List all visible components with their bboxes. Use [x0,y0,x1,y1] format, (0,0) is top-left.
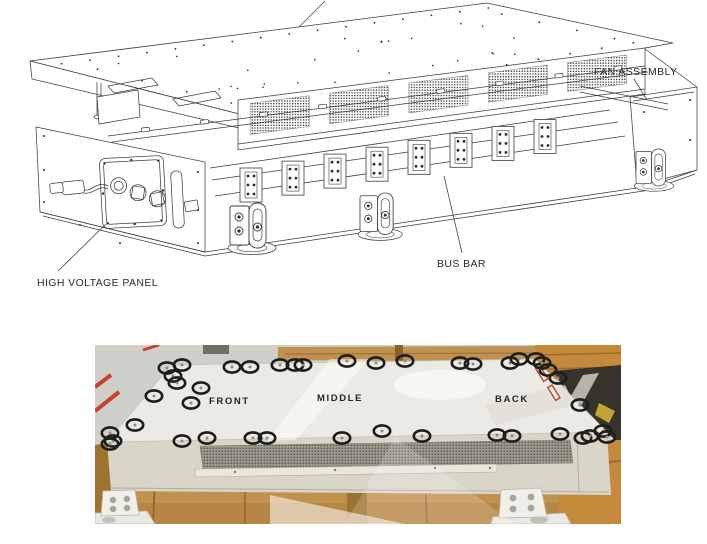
back-label: BACK [495,394,529,405]
high-voltage-panel-label: HIGH VOLTAGE PANEL [37,277,158,289]
figure-page: { "figure": { "top_diagram": { "kind": "… [0,0,707,544]
assembly-line-drawing: FAN ASSEMBLY BUS BAR HIGH VOLTAGE PANEL [0,0,707,335]
background-object [203,345,229,354]
middle-label: MIDDLE [317,393,363,404]
leader-line-top-cover [299,1,325,27]
fan-assembly-label: FAN ASSEMBLY [594,66,677,78]
mounting-foot [228,203,276,255]
high-voltage-panel [99,155,167,228]
front-label: FRONT [209,396,250,407]
assembly-photo: FRONT MIDDLE BACK [95,345,621,524]
mounting-foot [358,193,402,240]
leader-line-hv [58,224,106,271]
bus-bar-label: BUS BAR [437,258,486,270]
